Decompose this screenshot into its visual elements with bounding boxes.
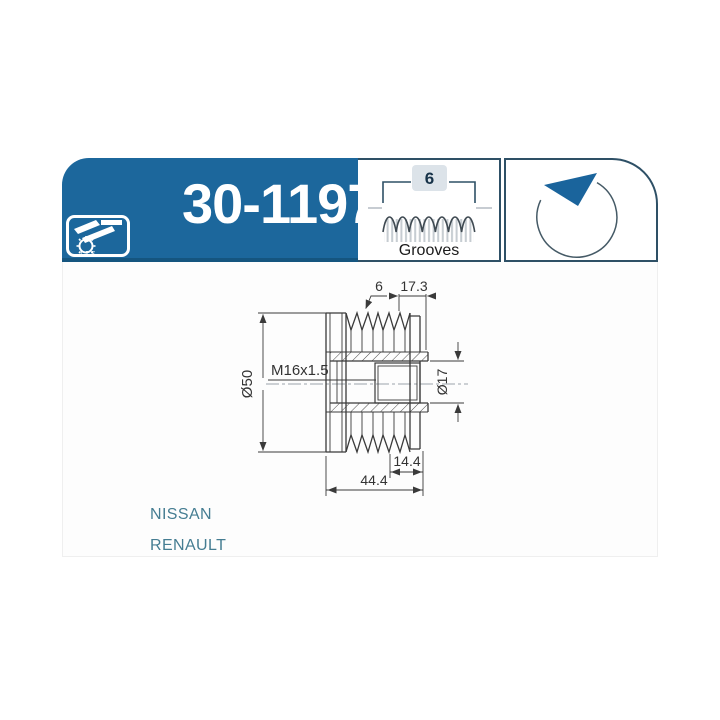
ijs-logo-icon: I.J.S. (66, 215, 130, 257)
rotation-panel (504, 158, 658, 262)
brand-panel: I.J.S. 30-1197 (62, 158, 358, 262)
rotation-ccw-icon (506, 160, 656, 260)
application-renault: RENAULT (150, 537, 226, 555)
logo-brand-text: I.J.S. (80, 249, 97, 257)
part-card: I.J.S. 30-1197 (62, 158, 658, 557)
application-nissan: NISSAN (150, 506, 212, 524)
catalog-page: I.J.S. 30-1197 (0, 0, 720, 720)
grooves-profile-icon: 6 Grooves (358, 160, 499, 260)
grooves-panel: 6 Grooves (358, 158, 501, 262)
grooves-count: 6 (425, 169, 434, 188)
part-number: 30-1197 (182, 171, 377, 236)
grooves-label: Grooves (399, 242, 459, 259)
card-header: I.J.S. 30-1197 (62, 158, 658, 262)
logo-stripe (74, 220, 100, 234)
logo-bar (101, 220, 122, 225)
rotation-arrowhead (544, 173, 597, 206)
